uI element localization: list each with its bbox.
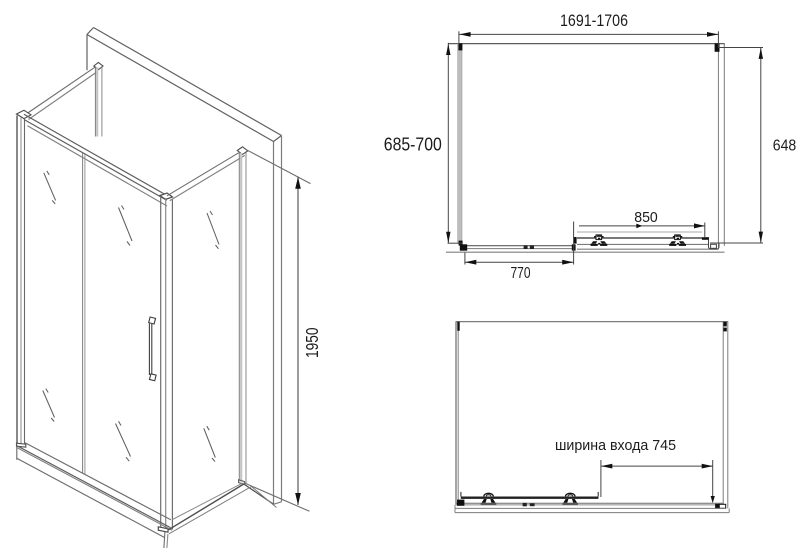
svg-text:770: 770 [511, 265, 531, 282]
svg-text:1691-1706: 1691-1706 [560, 11, 628, 30]
svg-text:648: 648 [773, 138, 797, 155]
svg-text:1950: 1950 [302, 327, 322, 358]
svg-text:ширина входа 745: ширина входа 745 [555, 438, 676, 454]
svg-text:685-700: 685-700 [384, 135, 442, 155]
svg-text:850: 850 [634, 209, 658, 226]
